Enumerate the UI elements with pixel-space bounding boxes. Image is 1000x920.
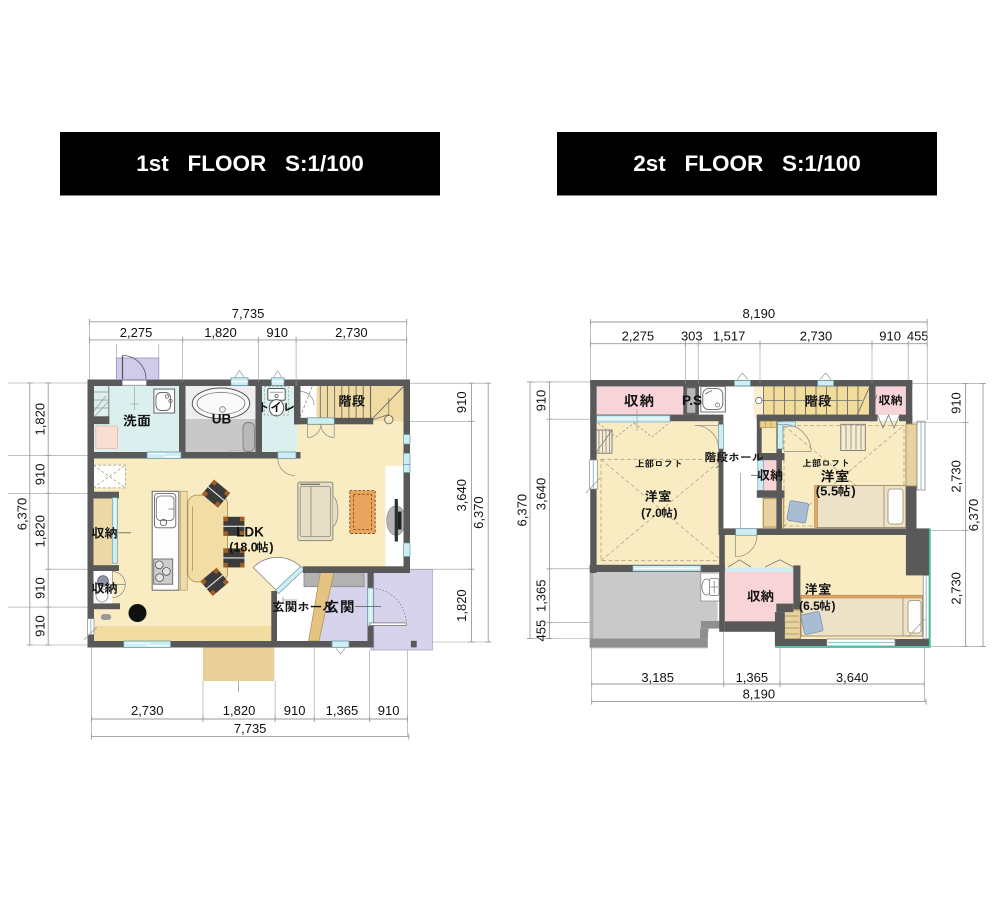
svg-text:3,640: 3,640 [836, 670, 869, 685]
svg-text:910: 910 [534, 390, 549, 412]
svg-text:8,190: 8,190 [743, 686, 776, 701]
svg-text:(7.0: (7.0 [641, 506, 662, 520]
svg-text:2,730: 2,730 [949, 572, 964, 605]
svg-text:P.S: P.S [682, 393, 702, 408]
svg-text:(6.5: (6.5 [799, 599, 820, 613]
svg-text:2,730: 2,730 [335, 325, 368, 340]
svg-text:2,730: 2,730 [949, 460, 964, 493]
svg-text:2st FLOOR S:1/100: 2st FLOOR S:1/100 [633, 151, 861, 176]
svg-text:3,640: 3,640 [534, 478, 549, 511]
svg-text:910: 910 [949, 392, 964, 414]
svg-text:910: 910 [454, 391, 469, 413]
svg-text:6,370: 6,370 [966, 499, 981, 532]
svg-text:2,730: 2,730 [800, 329, 833, 344]
svg-text:7,735: 7,735 [234, 721, 267, 736]
svg-text:6,370: 6,370 [515, 494, 530, 527]
svg-text:455: 455 [907, 329, 929, 344]
svg-text:3,640: 3,640 [454, 479, 469, 512]
svg-text:1,820: 1,820 [33, 403, 48, 436]
svg-text:LDK: LDK [236, 525, 264, 540]
svg-text:910: 910 [284, 703, 306, 718]
svg-text:UB: UB [212, 412, 232, 427]
svg-text:6,370: 6,370 [471, 496, 486, 529]
svg-text:2,275: 2,275 [120, 325, 153, 340]
svg-text:6,370: 6,370 [15, 498, 30, 531]
svg-text:910: 910 [33, 463, 48, 485]
svg-text:1,820: 1,820 [454, 589, 469, 622]
svg-text:(5.5: (5.5 [816, 484, 838, 499]
svg-text:): ) [832, 599, 836, 613]
svg-text:1,820: 1,820 [223, 703, 256, 718]
svg-text:910: 910 [33, 577, 48, 599]
svg-text:8,190: 8,190 [743, 306, 776, 321]
svg-text:455: 455 [534, 620, 549, 642]
svg-text:910: 910 [879, 329, 901, 344]
svg-text:3,185: 3,185 [641, 670, 674, 685]
svg-text:1st FLOOR S:1/100: 1st FLOOR S:1/100 [136, 151, 364, 176]
svg-text:): ) [674, 506, 678, 520]
svg-text:7,735: 7,735 [232, 306, 265, 321]
svg-text:1,820: 1,820 [33, 515, 48, 548]
svg-text:2,730: 2,730 [131, 703, 164, 718]
svg-text:1,517: 1,517 [713, 329, 746, 344]
svg-text:): ) [269, 541, 273, 555]
svg-text:1,365: 1,365 [534, 579, 549, 612]
svg-text:): ) [851, 484, 855, 499]
svg-text:(18.0: (18.0 [229, 541, 258, 555]
svg-text:1,820: 1,820 [204, 325, 237, 340]
svg-text:910: 910 [378, 703, 400, 718]
svg-text:1,365: 1,365 [326, 703, 359, 718]
svg-text:303: 303 [681, 329, 703, 344]
svg-text:910: 910 [266, 325, 288, 340]
svg-text:910: 910 [33, 615, 48, 637]
svg-text:2,275: 2,275 [622, 329, 655, 344]
svg-text:1,365: 1,365 [736, 670, 769, 685]
